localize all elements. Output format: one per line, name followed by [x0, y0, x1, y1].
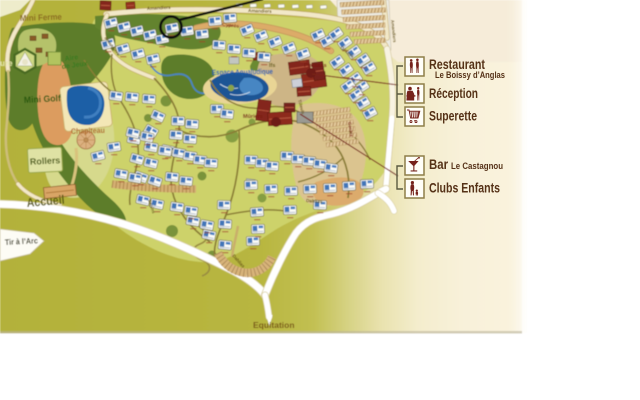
svg-text:Mini Golf: Mini Golf	[24, 93, 62, 105]
svg-text:Equitation: Equitation	[253, 320, 295, 330]
svg-text:Ifs: Ifs	[269, 63, 275, 69]
svg-text:Tir à l’Arc: Tir à l’Arc	[5, 236, 39, 247]
svg-text:Clubs Enfants: Clubs Enfants	[429, 181, 500, 196]
svg-text:Mini Ferme: Mini Ferme	[20, 12, 63, 23]
svg-text:Mûriers: Mûriers	[243, 114, 263, 120]
svg-text:Réception: Réception	[429, 86, 478, 101]
svg-text:Superette: Superette	[429, 109, 477, 124]
svg-text:Platanes: Platanes	[304, 63, 327, 69]
svg-text:Le Boissy d’Anglas: Le Boissy d’Anglas	[435, 70, 505, 80]
svg-text:Rollers: Rollers	[30, 155, 61, 167]
svg-text:Espace Aqualudique: Espace Aqualudique	[212, 67, 273, 77]
svg-text:Chapiteau: Chapiteau	[71, 126, 105, 136]
svg-text:Bar: Bar	[429, 157, 449, 172]
svg-text:Le Castagnou: Le Castagnou	[451, 161, 503, 171]
svg-text:ure: ure	[0, 59, 13, 68]
svg-text:Amandiers: Amandiers	[248, 8, 272, 14]
